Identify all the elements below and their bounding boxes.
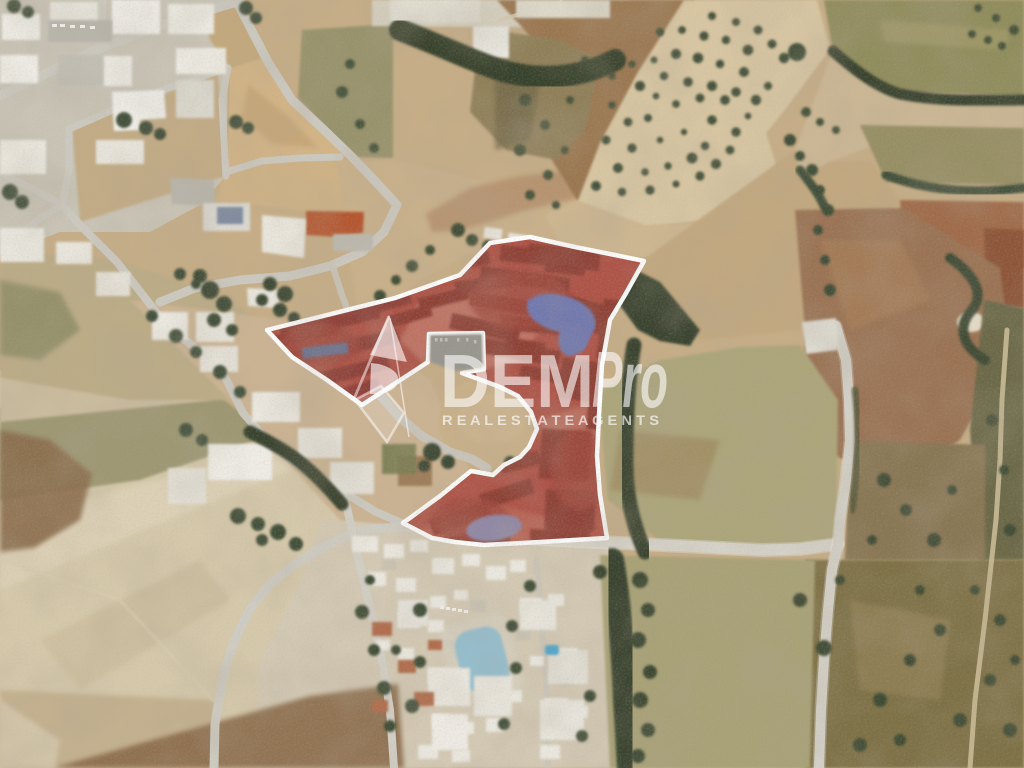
svg-text:Pro: Pro — [592, 335, 668, 424]
svg-text:DEM: DEM — [440, 339, 594, 423]
svg-text:R E A L E S T A T E A G E N T: R E A L E S T A T E A G E N T S — [442, 412, 659, 428]
